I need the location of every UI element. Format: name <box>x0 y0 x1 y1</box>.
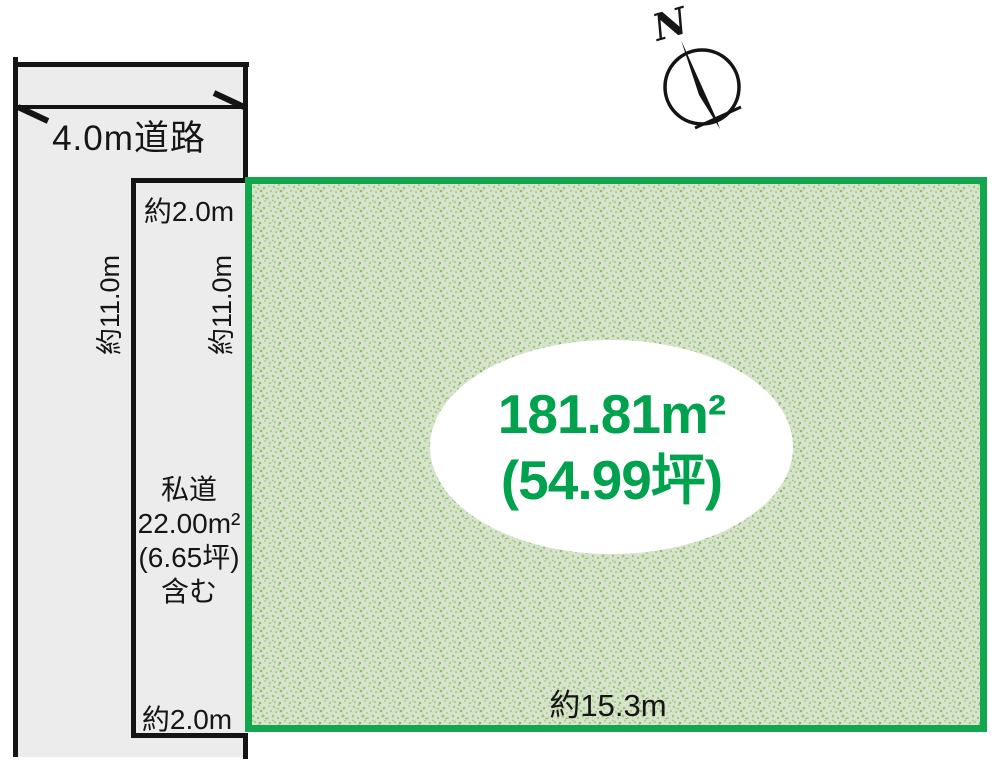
private-road-note-line: (6.65坪) <box>133 541 245 575</box>
plot-area-sqm: 181.81m² <box>498 381 725 447</box>
plot-area-tsubo: (54.99坪) <box>501 447 722 513</box>
private-road-top-boundary-line <box>131 178 245 183</box>
private-road-note: 私道 22.00m² (6.65坪) 含む <box>133 473 245 609</box>
road-width-label: 4.0m道路 <box>13 110 245 161</box>
private-road-depth-label: 約11.0m <box>206 230 238 380</box>
private-road-note-line: 含む <box>133 575 245 609</box>
private-road-top-width-label: 約2.0m <box>133 190 245 230</box>
road-top-boundary-line <box>13 62 249 67</box>
land-plot-diagram: 4.0m道路 約11.0m 約2.0m 約11.0m 私道 22.00m² (6… <box>0 0 1000 771</box>
private-road-bottom-tick-line <box>243 738 248 759</box>
private-road-note-line: 私道 <box>133 473 245 507</box>
road-left-boundary-line <box>13 57 18 757</box>
private-road-note-line: 22.00m² <box>133 507 245 541</box>
road-area <box>13 62 245 757</box>
plot-frontage-label: 約15.3m <box>498 680 718 725</box>
private-road-bottom-width-label: 約2.0m <box>131 698 243 738</box>
road-depth-label: 約11.0m <box>94 230 126 380</box>
area-label-ellipse: 181.81m² (54.99坪) <box>430 340 793 554</box>
private-road-left-boundary-line <box>131 178 136 738</box>
